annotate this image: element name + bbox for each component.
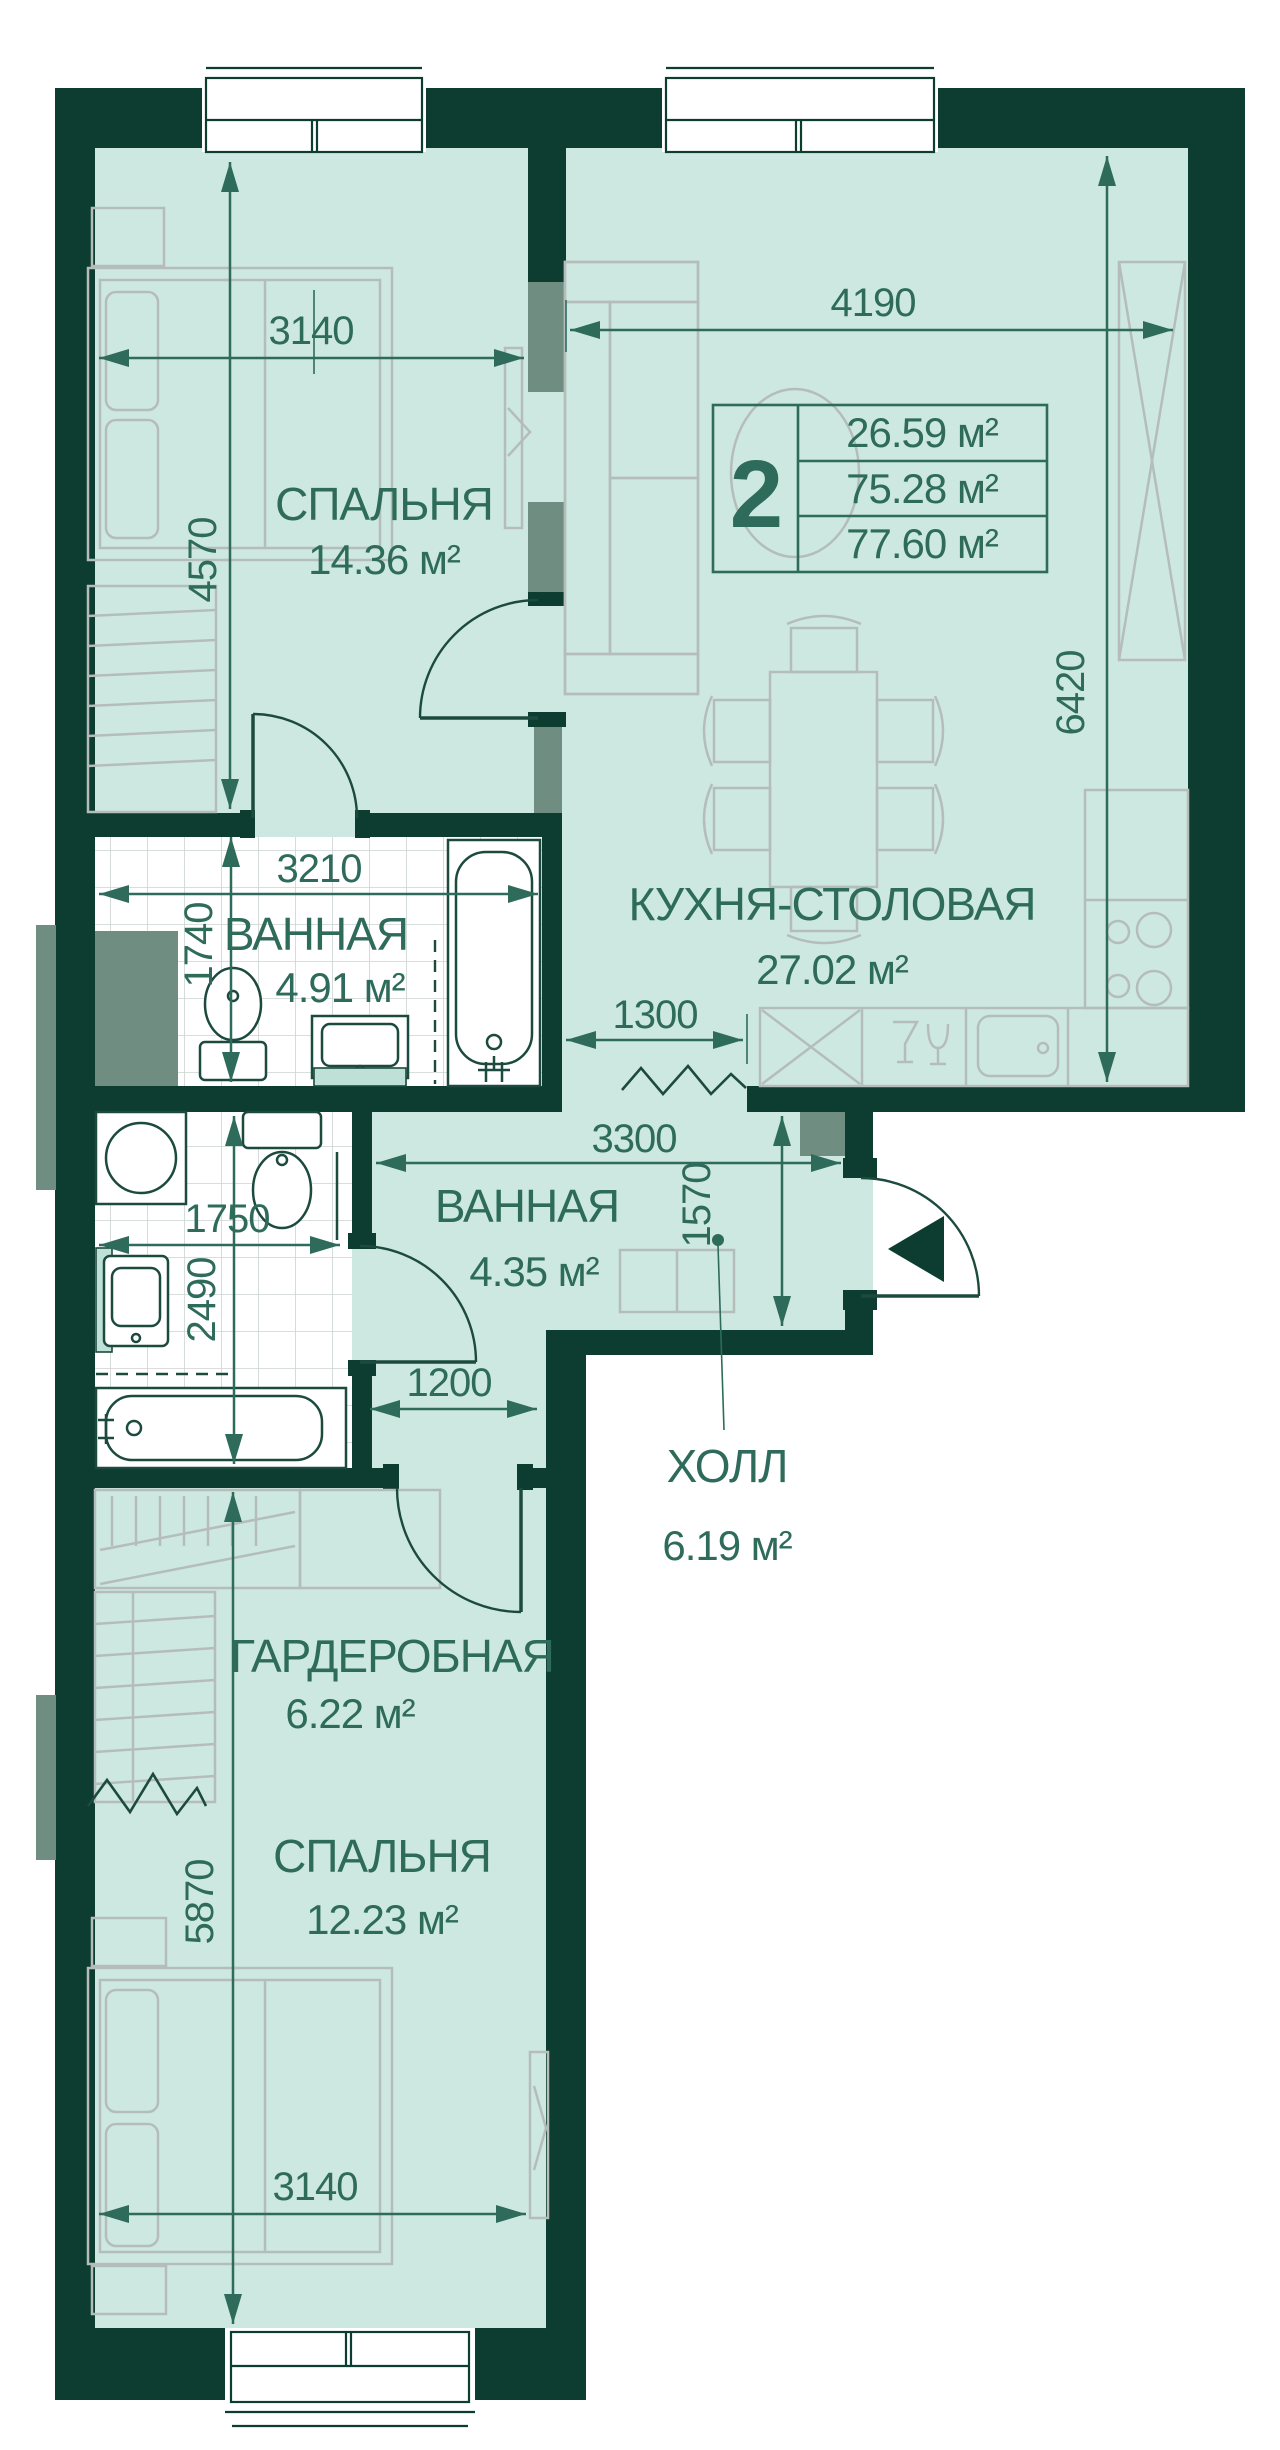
- dim-bedroom1-width: 3140: [269, 309, 354, 353]
- washing-machine-icon: [96, 1112, 186, 1204]
- dim-hall-depth: 1570: [675, 1163, 719, 1248]
- window-icon: [662, 62, 938, 152]
- dim-hall-width: 3300: [592, 1117, 677, 1161]
- room-label-hall: ХОЛЛ: [667, 1440, 788, 1492]
- floorplan-canvas: 3140 4190 4570 6420 3210 1740 1300 3300 …: [0, 0, 1280, 2450]
- shaft: [95, 931, 178, 1086]
- room-area-bathroom-1: 4.91 м²: [275, 964, 405, 1011]
- unit-area-main: 75.28 м²: [846, 465, 999, 512]
- window-icon: [225, 2328, 475, 2428]
- room-label-bathroom-1: ВАННАЯ: [224, 908, 408, 960]
- dim-bedroom2-width: 3140: [273, 2165, 358, 2209]
- dim-bathroom2-depth: 2490: [180, 1258, 224, 1343]
- floorplan-page: 3140 4190 4570 6420 3210 1740 1300 3300 …: [0, 0, 1280, 2450]
- sink-icon: [312, 1016, 408, 1086]
- dim-bathroom1-depth: 1740: [177, 903, 221, 988]
- dim-kitchen-width: 4190: [831, 281, 916, 325]
- bathtub-icon: [96, 1388, 346, 1468]
- dim-kitchen-depth: 6420: [1049, 651, 1093, 736]
- room-label-bathroom-2: ВАННАЯ: [435, 1180, 619, 1232]
- unit-rooms-count: 2: [730, 441, 782, 548]
- room-label-wardrobe: ГАРДЕРОБНАЯ: [230, 1630, 554, 1682]
- unit-area-living: 26.59 м²: [846, 409, 999, 456]
- room-label-kitchen: КУХНЯ-СТОЛОВАЯ: [629, 878, 1036, 930]
- room-area-bathroom-2: 4.35 м²: [469, 1248, 599, 1295]
- room-area-hall: 6.19 м²: [662, 1522, 792, 1569]
- shaft: [800, 1112, 845, 1156]
- room-label-bedroom-2: СПАЛЬНЯ: [273, 1830, 491, 1882]
- entry-direction-icon: [888, 1216, 944, 1282]
- room-label-bedroom-1: СПАЛЬНЯ: [275, 478, 493, 530]
- dim-kitchen-passage: 1300: [613, 993, 698, 1037]
- entry-door: [861, 1178, 979, 1296]
- room-area-kitchen: 27.02 м²: [756, 946, 909, 993]
- bathtub-icon: [448, 840, 540, 1086]
- window-icon: [202, 62, 426, 152]
- room-area-bedroom-1: 14.36 м²: [308, 536, 461, 583]
- room-area-wardrobe: 6.22 м²: [285, 1690, 415, 1737]
- sink-icon: [96, 1248, 168, 1352]
- unit-area-total: 77.60 м²: [846, 520, 999, 567]
- dim-bathroom2-width: 1750: [185, 1197, 270, 1241]
- dim-bedroom2-depth: 5870: [178, 1860, 222, 1945]
- dim-wardrobe-door: 1200: [407, 1361, 492, 1405]
- room-area-bedroom-2: 12.23 м²: [306, 1896, 459, 1943]
- dim-bathroom1-width: 3210: [277, 847, 362, 891]
- dim-bedroom1-depth: 4570: [181, 518, 225, 603]
